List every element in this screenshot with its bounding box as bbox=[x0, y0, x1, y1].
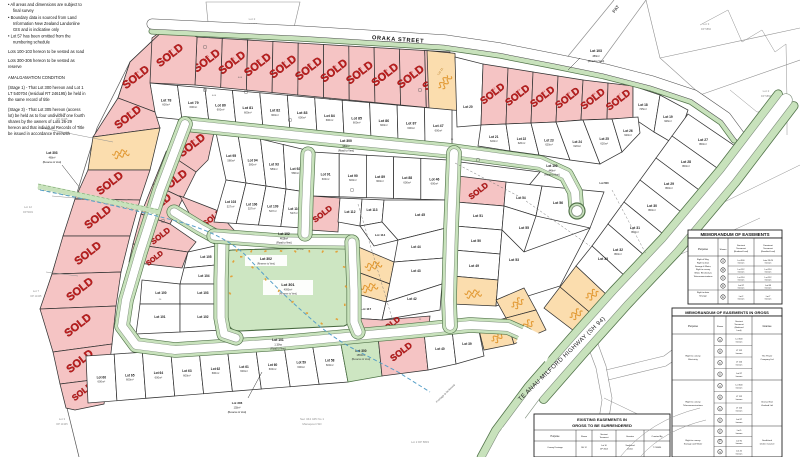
svg-text:Lot 114: Lot 114 bbox=[738, 276, 746, 279]
svg-text:Chorus New: Chorus New bbox=[761, 401, 773, 404]
svg-text:DP 4504: DP 4504 bbox=[600, 448, 609, 450]
svg-text:Lot 47: Lot 47 bbox=[433, 124, 444, 128]
svg-text:456m²: 456m² bbox=[592, 54, 599, 58]
svg-text:1853m²: 1853m² bbox=[356, 353, 365, 357]
svg-text:Lot 39: Lot 39 bbox=[462, 342, 472, 346]
svg-text:Lot 18: Lot 18 bbox=[638, 103, 648, 107]
svg-text:Lot 25: Lot 25 bbox=[600, 137, 610, 141]
svg-text:Lots 28-29: Lots 28-29 bbox=[763, 259, 774, 262]
svg-text:(Reserve to Vest): (Reserve to Vest) bbox=[43, 161, 62, 164]
svg-text:Lot 78: Lot 78 bbox=[161, 98, 172, 102]
svg-text:(Reserve to Vest): (Reserve to Vest) bbox=[228, 411, 247, 414]
svg-text:600m²: 600m² bbox=[435, 128, 443, 132]
svg-text:Lot 87: Lot 87 bbox=[736, 372, 743, 375]
svg-text:Servient: Servient bbox=[600, 433, 608, 436]
svg-text:580m²: 580m² bbox=[227, 158, 235, 162]
svg-text:620m²: 620m² bbox=[573, 144, 581, 148]
svg-text:600m²: 600m² bbox=[407, 126, 415, 130]
svg-text:600m²: 600m² bbox=[155, 375, 163, 379]
svg-text:Lot 110: Lot 110 bbox=[288, 207, 299, 211]
svg-text:600m²: 600m² bbox=[183, 373, 191, 377]
svg-text:Lot 112: Lot 112 bbox=[738, 268, 746, 271]
svg-text:580m²: 580m² bbox=[249, 163, 257, 167]
svg-text:D: D bbox=[719, 419, 721, 422]
svg-text:Zealand Ltd: Zealand Ltd bbox=[761, 404, 773, 407]
svg-text:• All areas and dimensions ar: • All areas and dimensions are subject t… bbox=[8, 2, 83, 7]
svg-text:hereon: hereon bbox=[738, 279, 745, 282]
svg-text:EXISTING EASEMENTS IN: EXISTING EASEMENTS IN bbox=[577, 417, 627, 422]
svg-text:hereon: hereon bbox=[736, 340, 743, 343]
svg-text:Lot 42: Lot 42 bbox=[407, 297, 417, 301]
svg-text:Lot 88: Lot 88 bbox=[765, 284, 772, 287]
svg-text:hereon: hereon bbox=[738, 287, 745, 290]
svg-text:960m²: 960m² bbox=[342, 145, 349, 148]
svg-text:Lot 90: Lot 90 bbox=[348, 174, 358, 178]
svg-text:(Stage 1) - That Lot 300 hereo: (Stage 1) - That Lot 300 hereon and Lot … bbox=[8, 85, 84, 90]
svg-text:Lot 31: Lot 31 bbox=[630, 226, 640, 230]
svg-text:hereon: hereon bbox=[736, 375, 743, 378]
svg-text:620m²: 620m² bbox=[624, 133, 632, 137]
svg-text:Lot 26: Lot 26 bbox=[623, 129, 633, 133]
svg-text:800m²: 800m² bbox=[699, 142, 707, 146]
svg-text:Telecommunications: Telecommunications bbox=[683, 404, 704, 407]
svg-text:Lot 46: Lot 46 bbox=[429, 177, 439, 181]
svg-text:527m²: 527m² bbox=[248, 207, 256, 211]
svg-text:Lot 90: Lot 90 bbox=[736, 439, 743, 442]
svg-text:Lot 2: Lot 2 bbox=[249, 17, 256, 21]
svg-text:Grantee: Grantee bbox=[626, 435, 635, 438]
svg-text:Lot 95: Lot 95 bbox=[226, 154, 236, 158]
svg-text:• Lot 57 has been omitted fro: • Lot 57 has been omitted from the bbox=[8, 34, 71, 39]
svg-text:600m²: 600m² bbox=[380, 123, 388, 127]
svg-text:Lot 63: Lot 63 bbox=[182, 369, 192, 373]
svg-text:hereon: hereon bbox=[765, 279, 772, 282]
svg-text:hereon: hereon bbox=[738, 298, 745, 301]
svg-text:Lot 102: Lot 102 bbox=[197, 315, 208, 319]
svg-text:AMALGAMATION CONDITION: AMALGAMATION CONDITION bbox=[8, 75, 65, 80]
svg-text:Lot 103: Lot 103 bbox=[590, 49, 602, 53]
svg-text:(Road to Vest): (Road to Vest) bbox=[588, 59, 605, 63]
svg-text:Lot 500: Lot 500 bbox=[599, 181, 609, 185]
svg-text:hereon: hereon bbox=[736, 363, 743, 366]
svg-text:Electricity: Electricity bbox=[688, 358, 698, 361]
svg-text:Lot 80: Lot 80 bbox=[215, 104, 226, 108]
svg-text:620m²: 620m² bbox=[518, 141, 526, 145]
svg-text:926m²: 926m² bbox=[664, 119, 672, 123]
svg-text:600m²: 600m² bbox=[97, 380, 105, 384]
svg-text:Right to convey: Right to convey bbox=[685, 439, 701, 442]
svg-text:Purpose: Purpose bbox=[551, 435, 561, 438]
svg-text:Lot 50: Lot 50 bbox=[471, 239, 481, 243]
svg-text:Southland: Southland bbox=[625, 444, 634, 447]
svg-text:Lot 62: Lot 62 bbox=[211, 367, 221, 371]
svg-text:527m²: 527m² bbox=[227, 204, 235, 208]
svg-text:(Stage 3) - That Lot 305 hereo: (Stage 3) - That Lot 305 hereon (access bbox=[8, 107, 81, 112]
svg-text:hereon: hereon bbox=[736, 386, 743, 389]
svg-text:• Boundary data is sourced fr: • Boundary data is sourced from Land bbox=[8, 15, 77, 20]
svg-text:Lot 89: Lot 89 bbox=[375, 175, 385, 179]
svg-text:Shown: Shown bbox=[581, 436, 587, 438]
svg-text:745m²: 745m² bbox=[639, 107, 647, 111]
svg-text:final survey: final survey bbox=[13, 8, 35, 13]
svg-text:DP 11345: DP 11345 bbox=[56, 422, 68, 426]
svg-text:Lot 103: Lot 103 bbox=[225, 200, 236, 204]
svg-text:600m²: 600m² bbox=[297, 365, 305, 369]
svg-text:620m²: 620m² bbox=[490, 139, 498, 143]
svg-text:Lot 88: Lot 88 bbox=[402, 176, 412, 180]
svg-text:620m²: 620m² bbox=[545, 143, 553, 147]
svg-text:600m²: 600m² bbox=[244, 110, 252, 114]
svg-text:GROSS TO BE SURRENDERED: GROSS TO BE SURRENDERED bbox=[572, 423, 632, 428]
svg-text:MEMORANDUM OF EASEMENTS: MEMORANDUM OF EASEMENTS bbox=[700, 232, 769, 237]
svg-text:600m²: 600m² bbox=[269, 367, 277, 371]
svg-text:Lot 2 DP 5803: Lot 2 DP 5803 bbox=[411, 440, 429, 444]
svg-text:(Burdened: (Burdened bbox=[735, 326, 744, 329]
svg-text:(Reserve to Vest): (Reserve to Vest) bbox=[257, 263, 275, 266]
svg-text:Servient: Servient bbox=[737, 244, 745, 247]
svg-text:Right to convey: Right to convey bbox=[685, 401, 701, 404]
svg-text:hereon: hereon bbox=[765, 287, 772, 290]
svg-text:Lot 23: Lot 23 bbox=[544, 139, 554, 143]
svg-text:Lot 28: Lot 28 bbox=[681, 160, 691, 164]
svg-text:Lot 104: Lot 104 bbox=[198, 274, 209, 278]
svg-text:Lot 43: Lot 43 bbox=[411, 269, 421, 273]
svg-text:hereon: hereon bbox=[736, 398, 743, 401]
svg-text:Manapouri SD: Manapouri SD bbox=[302, 422, 322, 426]
svg-text:Lot 7: Lot 7 bbox=[33, 289, 40, 293]
svg-text:Convey Drainage: Convey Drainage bbox=[547, 447, 563, 449]
svg-text:Sewage and Water: Sewage and Water bbox=[684, 442, 703, 445]
svg-text:Lot 19: Lot 19 bbox=[663, 115, 673, 119]
svg-text:Lot 10: Lot 10 bbox=[601, 444, 607, 447]
svg-text:hereon: hereon bbox=[736, 432, 743, 435]
svg-text:Right to drain: Right to drain bbox=[697, 261, 710, 264]
svg-text:Tenement: Tenement bbox=[734, 323, 744, 326]
svg-text:hereon: hereon bbox=[738, 262, 745, 265]
svg-text:Lot 44: Lot 44 bbox=[411, 245, 421, 249]
svg-text:600m²: 600m² bbox=[271, 113, 279, 117]
svg-text:Lot 300: Lot 300 bbox=[736, 338, 744, 341]
svg-text:Lot 94: Lot 94 bbox=[248, 158, 258, 162]
svg-text:Lot 112: Lot 112 bbox=[345, 210, 356, 214]
svg-text:Lot 102: Lot 102 bbox=[278, 232, 290, 236]
svg-text:Lot 100: Lot 100 bbox=[546, 164, 557, 168]
svg-text:Telecommunications: Telecommunications bbox=[694, 275, 713, 278]
svg-text:DP 11345: DP 11345 bbox=[31, 295, 42, 298]
svg-text:Company Ltd: Company Ltd bbox=[760, 358, 774, 361]
svg-text:DP 5860: DP 5860 bbox=[701, 27, 712, 31]
svg-text:600m²: 600m² bbox=[403, 180, 411, 184]
svg-text:Lot 86: Lot 86 bbox=[379, 119, 390, 123]
svg-text:Lot 87: Lot 87 bbox=[738, 284, 745, 287]
svg-text:Lot 114: Lot 114 bbox=[375, 233, 386, 237]
svg-text:Purpose: Purpose bbox=[698, 247, 709, 251]
svg-text:Shown: Shown bbox=[717, 326, 724, 328]
svg-text:Lot 87: Lot 87 bbox=[406, 122, 417, 126]
svg-text:hereon: hereon bbox=[765, 298, 772, 301]
svg-text:LT 540704 (residual RT 246195): LT 540704 (residual RT 246195) be held i… bbox=[8, 91, 86, 96]
svg-text:440m²: 440m² bbox=[549, 170, 556, 173]
svg-text:(Burdened Land): (Burdened Land) bbox=[734, 250, 749, 253]
svg-text:Lot 303: Lot 303 bbox=[46, 151, 57, 155]
svg-text:Lot 300: Lot 300 bbox=[736, 384, 744, 387]
svg-text:600m²: 600m² bbox=[189, 105, 197, 109]
svg-text:Tenement: Tenement bbox=[600, 436, 609, 439]
svg-text:C: C bbox=[722, 277, 724, 280]
svg-text:600m²: 600m² bbox=[349, 178, 357, 182]
svg-text:Lot 100: Lot 100 bbox=[155, 291, 166, 295]
svg-text:Sec 344 445 No 1: Sec 344 445 No 1 bbox=[300, 417, 324, 421]
svg-text:Lot 300: Lot 300 bbox=[340, 139, 352, 143]
svg-text:Lot 93: Lot 93 bbox=[269, 163, 279, 167]
svg-text:reserve: reserve bbox=[8, 64, 22, 69]
svg-text:800m²: 800m² bbox=[682, 164, 690, 168]
svg-text:Tenement: Tenement bbox=[763, 247, 773, 250]
svg-text:Lot 83: Lot 83 bbox=[297, 111, 308, 115]
svg-text:Lot 101: Lot 101 bbox=[272, 338, 284, 342]
svg-text:48.16m: 48.16m bbox=[296, 249, 303, 251]
svg-text:Lot 21: Lot 21 bbox=[489, 135, 499, 139]
svg-text:MEMORANDUM OF EASEMENTS IN GRO: MEMORANDUM OF EASEMENTS IN GROSS bbox=[685, 310, 769, 315]
svg-text:C: C bbox=[719, 408, 721, 411]
svg-text:Lot 49: Lot 49 bbox=[469, 264, 479, 268]
svg-text:shares by the owners of Lots 2: shares by the owners of Lots 26-29 bbox=[8, 119, 73, 124]
svg-text:Lot 79: Lot 79 bbox=[188, 101, 199, 105]
svg-text:Lot 82: Lot 82 bbox=[270, 109, 281, 113]
svg-text:Created By: Created By bbox=[652, 435, 664, 438]
svg-text:Lot 45: Lot 45 bbox=[415, 213, 425, 217]
svg-text:Information New Zealand Landon: Information New Zealand Landonline bbox=[13, 21, 81, 26]
svg-text:Lot 81: Lot 81 bbox=[243, 106, 254, 110]
svg-text:hereon: hereon bbox=[736, 442, 743, 445]
svg-text:DE 12: DE 12 bbox=[581, 447, 587, 449]
svg-text:Lot 85: Lot 85 bbox=[351, 116, 362, 120]
svg-text:Lot 114: Lot 114 bbox=[765, 268, 773, 271]
svg-text:600m²: 600m² bbox=[376, 179, 384, 183]
svg-text:600m²: 600m² bbox=[212, 371, 220, 375]
svg-text:Lot 3: Lot 3 bbox=[59, 417, 66, 421]
svg-text:Lot 40: Lot 40 bbox=[435, 347, 445, 351]
svg-text:hereon: hereon bbox=[738, 271, 745, 274]
svg-text:600m²: 600m² bbox=[322, 177, 330, 181]
svg-text:Lot 65: Lot 65 bbox=[125, 373, 135, 377]
svg-text:Lot 103: Lot 103 bbox=[197, 291, 208, 295]
svg-text:600m²: 600m² bbox=[126, 378, 134, 382]
svg-text:Purpose: Purpose bbox=[688, 324, 699, 328]
svg-text:1.15ha: 1.15ha bbox=[274, 344, 282, 347]
svg-text:DP 5049: DP 5049 bbox=[23, 211, 33, 214]
svg-text:800m²: 800m² bbox=[648, 208, 656, 212]
svg-text:LT 112: LT 112 bbox=[736, 396, 743, 398]
svg-text:580m²: 580m² bbox=[291, 171, 299, 175]
svg-text:527m²: 527m² bbox=[290, 211, 298, 215]
svg-text:460m²: 460m² bbox=[49, 157, 56, 160]
svg-text:Lot 51: Lot 51 bbox=[473, 214, 483, 218]
svg-text:Lot 20: Lot 20 bbox=[463, 105, 473, 109]
svg-text:Right to drain: Right to drain bbox=[697, 291, 710, 294]
svg-text:Lot 87: Lot 87 bbox=[736, 418, 743, 421]
svg-text:Lot 112: Lot 112 bbox=[765, 276, 773, 279]
svg-text:Lot 58: Lot 58 bbox=[325, 359, 335, 363]
svg-text:Lot 91: Lot 91 bbox=[321, 173, 331, 177]
svg-text:(Road to Vest): (Road to Vest) bbox=[270, 348, 285, 351]
svg-text:Lot 12: Lot 12 bbox=[24, 205, 32, 209]
svg-text:600m²: 600m² bbox=[298, 116, 306, 120]
svg-text:be issued in accordance therew: be issued in accordance therewith bbox=[8, 131, 71, 136]
svg-text:Right to convey: Right to convey bbox=[685, 355, 701, 358]
svg-text:hereon: hereon bbox=[765, 271, 772, 274]
svg-text:620m²: 620m² bbox=[600, 141, 608, 145]
svg-text:(Benefited Land): (Benefited Land) bbox=[761, 250, 775, 253]
svg-text:Lot 53: Lot 53 bbox=[509, 258, 519, 262]
svg-text:Lot 32: Lot 32 bbox=[613, 248, 623, 252]
svg-text:4093m²: 4093m² bbox=[284, 289, 293, 292]
svg-text:580m²: 580m² bbox=[270, 167, 278, 171]
svg-text:Lot 92: Lot 92 bbox=[290, 167, 300, 171]
svg-text:600m²: 600m² bbox=[326, 118, 334, 122]
svg-text:Lot 301: Lot 301 bbox=[281, 283, 294, 287]
svg-text:Lot 306: Lot 306 bbox=[232, 401, 243, 405]
svg-text:Lot 109: Lot 109 bbox=[267, 205, 278, 209]
svg-text:Lot 60: Lot 60 bbox=[268, 363, 278, 367]
svg-text:numbering schedule: numbering schedule bbox=[13, 40, 51, 45]
svg-text:Lot 64: Lot 64 bbox=[154, 371, 164, 375]
svg-text:Lot 3: Lot 3 bbox=[703, 22, 710, 26]
svg-text:Lot 2: Lot 2 bbox=[763, 89, 770, 93]
svg-text:Lot 101: Lot 101 bbox=[154, 315, 165, 319]
svg-text:hereon and that individual Rec: hereon and that individual Records of Ti… bbox=[8, 125, 85, 130]
svg-text:Lot 41: Lot 41 bbox=[736, 450, 743, 453]
svg-text:Right of Way,: Right of Way, bbox=[697, 258, 710, 261]
svg-text:(Reserve to Vest): (Reserve to Vest) bbox=[352, 358, 371, 361]
svg-text:Lot 56: Lot 56 bbox=[553, 201, 563, 205]
svg-text:Lot 66: Lot 66 bbox=[97, 375, 107, 379]
svg-text:(Road to Vest): (Road to Vest) bbox=[276, 242, 291, 245]
svg-text:(Road to Vest): (Road to Vest) bbox=[338, 150, 354, 153]
svg-text:800m²: 800m² bbox=[665, 186, 673, 190]
svg-text:Lots 100-103 hereon to be vest: Lots 100-103 hereon to be vested as road bbox=[8, 49, 85, 54]
svg-text:Right to convey: Right to convey bbox=[696, 268, 711, 271]
svg-text:600m²: 600m² bbox=[353, 121, 361, 125]
svg-text:Lot 84: Lot 84 bbox=[324, 114, 335, 118]
svg-text:4616m²: 4616m² bbox=[280, 238, 288, 241]
svg-text:The Power: The Power bbox=[762, 355, 773, 358]
svg-text:Lot 59: Lot 59 bbox=[297, 361, 307, 365]
svg-text:G: G bbox=[719, 451, 721, 454]
svg-text:the same record of title: the same record of title bbox=[8, 97, 50, 102]
svg-text:Lot 33: Lot 33 bbox=[598, 257, 608, 261]
svg-text:Servient: Servient bbox=[735, 320, 743, 323]
svg-text:600m²: 600m² bbox=[240, 369, 248, 373]
svg-text:Lot 302: Lot 302 bbox=[260, 257, 272, 261]
svg-text:Lot 106: Lot 106 bbox=[246, 202, 257, 206]
svg-text:hereon: hereon bbox=[736, 352, 743, 355]
svg-text:102m²: 102m² bbox=[234, 407, 241, 410]
svg-text:Lot 29: Lot 29 bbox=[664, 182, 674, 186]
svg-text:600m²: 600m² bbox=[326, 363, 334, 367]
svg-text:D: D bbox=[719, 373, 721, 376]
svg-text:600m²: 600m² bbox=[217, 108, 225, 112]
svg-text:T 216434: T 216434 bbox=[653, 447, 662, 449]
svg-text:600m²: 600m² bbox=[162, 103, 170, 107]
svg-text:Grantee: Grantee bbox=[762, 325, 772, 328]
svg-text:hereon: hereon bbox=[736, 409, 743, 412]
svg-text:Lot 113: Lot 113 bbox=[367, 208, 378, 212]
svg-text:Sewage: Sewage bbox=[699, 295, 707, 297]
svg-text:D: D bbox=[722, 285, 724, 288]
svg-text:Southland: Southland bbox=[762, 439, 773, 442]
svg-text:Lot 24: Lot 24 bbox=[573, 140, 583, 144]
svg-text:GIS and is indicative only: GIS and is indicative only bbox=[13, 27, 60, 32]
svg-text:Lots 300-306 hereon to be vest: Lots 300-306 hereon to be vested as bbox=[8, 58, 75, 63]
svg-text:hereon: hereon bbox=[736, 421, 743, 424]
svg-text:Dominant: Dominant bbox=[763, 244, 773, 247]
svg-text:Sewage & Water,: Sewage & Water, bbox=[695, 265, 711, 268]
svg-text:800m²: 800m² bbox=[614, 252, 622, 256]
svg-text:Land): Land) bbox=[737, 330, 742, 332]
svg-text:Lot 61: Lot 61 bbox=[239, 365, 249, 369]
svg-text:(Road to Vest): (Road to Vest) bbox=[544, 174, 559, 177]
svg-text:600m²: 600m² bbox=[431, 182, 439, 186]
svg-text:LT 112: LT 112 bbox=[736, 350, 743, 352]
svg-text:Tenement: Tenement bbox=[736, 247, 746, 250]
svg-text:Lot 300: Lot 300 bbox=[738, 259, 746, 262]
svg-text:Lot 54: Lot 54 bbox=[516, 196, 526, 200]
svg-text:Water, Electricity &: Water, Electricity & bbox=[694, 272, 712, 275]
svg-text:Lot 105: Lot 105 bbox=[200, 255, 211, 259]
svg-text:LT 114: LT 114 bbox=[736, 408, 743, 410]
svg-text:C: C bbox=[719, 362, 721, 365]
svg-text:District Council: District Council bbox=[760, 442, 775, 445]
svg-text:Shown: Shown bbox=[720, 249, 727, 251]
svg-text:Lot 27: Lot 27 bbox=[698, 138, 708, 142]
svg-text:Lot 117: Lot 117 bbox=[361, 307, 372, 311]
svg-text:Lot 55: Lot 55 bbox=[519, 226, 529, 230]
svg-text:527m²: 527m² bbox=[269, 209, 277, 213]
svg-text:lot) be held as to four undivi: lot) be held as to four undivided one fo… bbox=[8, 113, 85, 118]
svg-text:LT 114: LT 114 bbox=[736, 362, 743, 364]
svg-text:hereon: hereon bbox=[736, 452, 743, 455]
svg-text:Lot 30: Lot 30 bbox=[647, 204, 657, 208]
svg-text:Lot 22: Lot 22 bbox=[517, 137, 527, 141]
svg-text:hereon: hereon bbox=[765, 262, 772, 265]
